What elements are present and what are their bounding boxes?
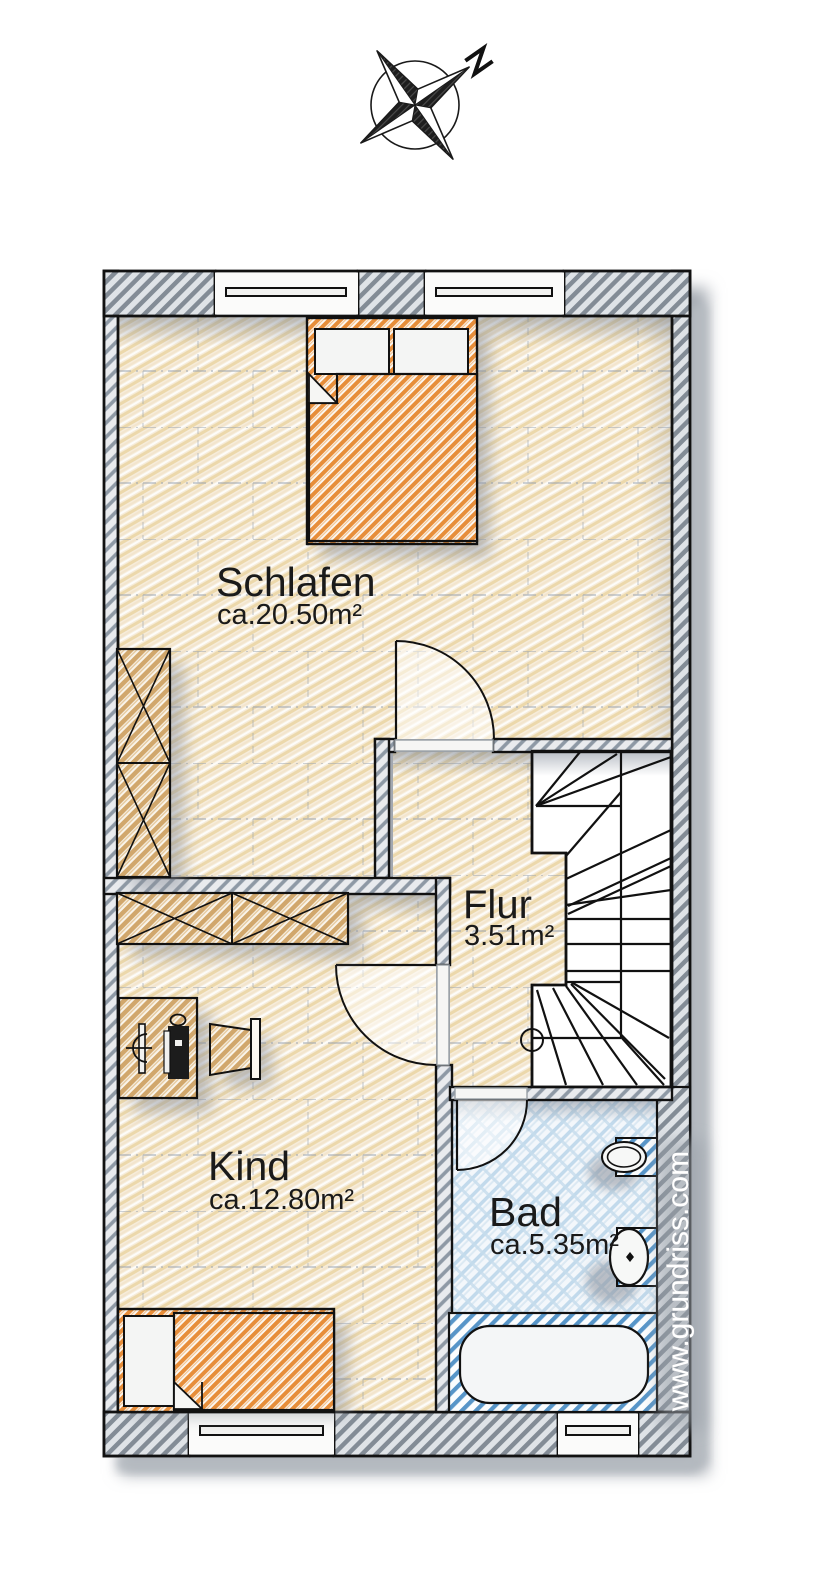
svg-text:www.grundriss.com: www.grundriss.com [662, 1151, 695, 1412]
svg-text:ca.5.35m²: ca.5.35m² [490, 1229, 619, 1261]
svg-text:3.51m²: 3.51m² [464, 920, 555, 952]
svg-text:ca.12.80m²: ca.12.80m² [209, 1184, 354, 1216]
svg-text:ca.20.50m²: ca.20.50m² [217, 599, 362, 631]
svg-text:Kind: Kind [208, 1143, 290, 1189]
